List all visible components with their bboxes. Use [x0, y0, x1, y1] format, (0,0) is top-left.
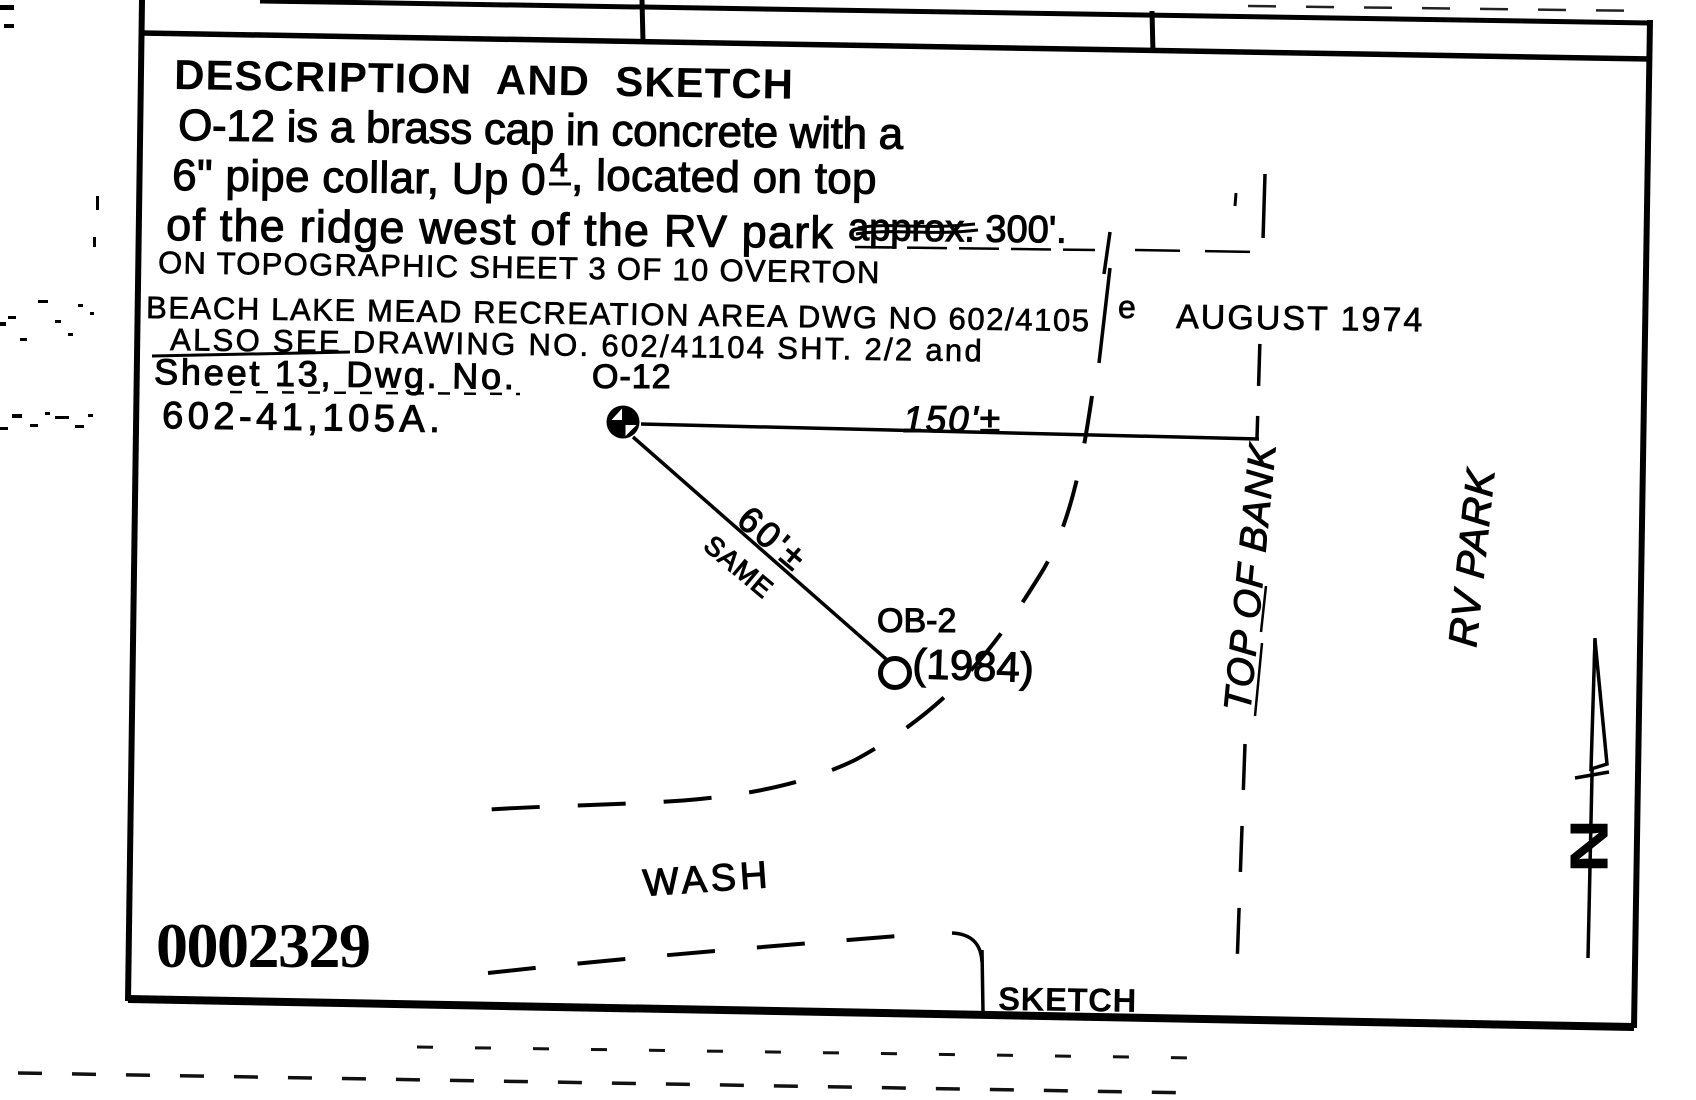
svg-text:WASH: WASH	[642, 854, 773, 905]
svg-text:150'±: 150'±	[903, 399, 1002, 440]
svg-text:O-12 is a brass cap in concret: O-12 is a brass cap in concrete with a	[178, 101, 904, 159]
svg-text:N: N	[1559, 819, 1619, 874]
svg-text:e: e	[1118, 289, 1136, 325]
svg-text:4: 4	[550, 147, 568, 183]
svg-text:6" pipe collar, Up 0: 6" pipe collar, Up 0	[172, 151, 546, 205]
svg-text:SKETCH: SKETCH	[998, 980, 1137, 1019]
svg-text:, located on top: , located on top	[571, 151, 877, 204]
svg-text:OB-2: OB-2	[877, 602, 956, 640]
svg-text:DESCRIPTION AND SKETCH: DESCRIPTION AND SKETCH	[174, 51, 794, 108]
svg-text:Sheet 13, Dwg. No.: Sheet 13, Dwg. No.	[154, 351, 517, 397]
svg-text:AUGUST 1974: AUGUST 1974	[1176, 298, 1425, 339]
svg-text:O-12: O-12	[592, 358, 672, 396]
svg-text:approx. 300'.: approx. 300'.	[848, 207, 1067, 252]
svg-text:602-41,105A.: 602-41,105A.	[162, 395, 445, 441]
svg-text:0002329: 0002329	[156, 910, 370, 981]
